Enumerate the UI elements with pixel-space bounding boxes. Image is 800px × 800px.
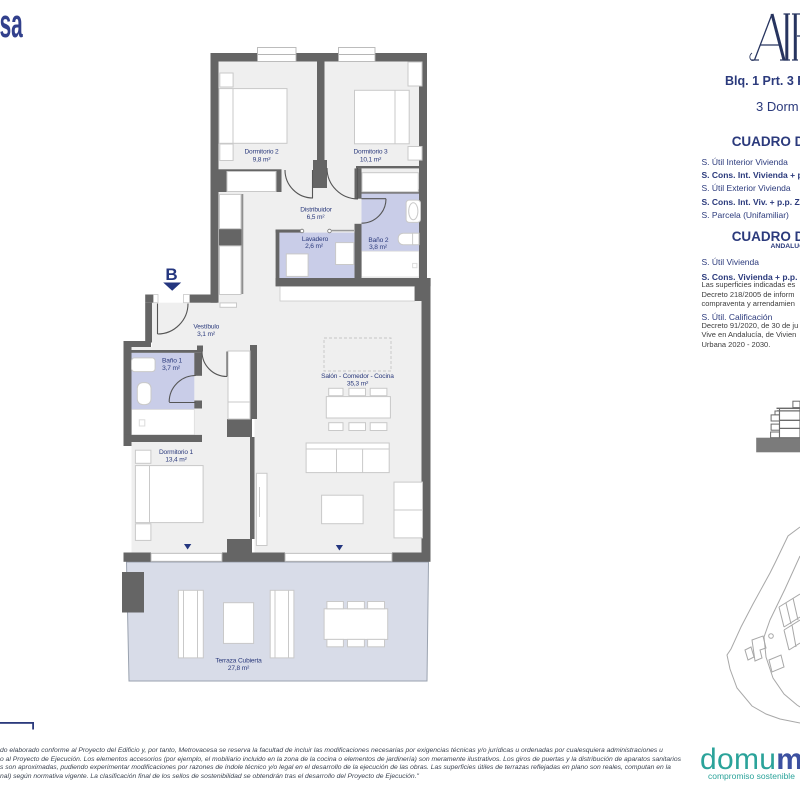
svg-text:Dormitorio 1: Dormitorio 1 — [159, 449, 194, 456]
svg-text:Baño 1: Baño 1 — [162, 358, 182, 365]
svg-text:3,1 m²: 3,1 m² — [197, 331, 216, 338]
svg-text:27,8 m²: 27,8 m² — [228, 665, 250, 672]
svg-text:2,6 m²: 2,6 m² — [305, 243, 324, 250]
svg-text:Lavadero: Lavadero — [302, 236, 329, 243]
svg-text:Terraza Cubierta: Terraza Cubierta — [215, 658, 262, 665]
svg-text:Baño 2: Baño 2 — [368, 237, 388, 244]
svg-text:Distribuidor: Distribuidor — [300, 207, 332, 214]
svg-text:10,1 m²: 10,1 m² — [360, 157, 382, 164]
svg-text:3,7 m²: 3,7 m² — [162, 365, 181, 372]
svg-text:Dormitorio 2: Dormitorio 2 — [244, 149, 279, 156]
svg-text:3,8 m²: 3,8 m² — [369, 244, 388, 251]
svg-text:6,5 m²: 6,5 m² — [307, 214, 326, 221]
svg-text:Vestíbulo: Vestíbulo — [193, 324, 219, 331]
svg-text:13,4 m²: 13,4 m² — [165, 457, 187, 464]
svg-text:Dormitorio 3: Dormitorio 3 — [353, 149, 388, 156]
svg-text:9,8 m²: 9,8 m² — [253, 157, 272, 164]
svg-text:Salón - Comedor - Cocina: Salón - Comedor - Cocina — [321, 373, 394, 380]
svg-text:B: B — [165, 265, 177, 284]
svg-text:35,3 m²: 35,3 m² — [347, 381, 369, 388]
